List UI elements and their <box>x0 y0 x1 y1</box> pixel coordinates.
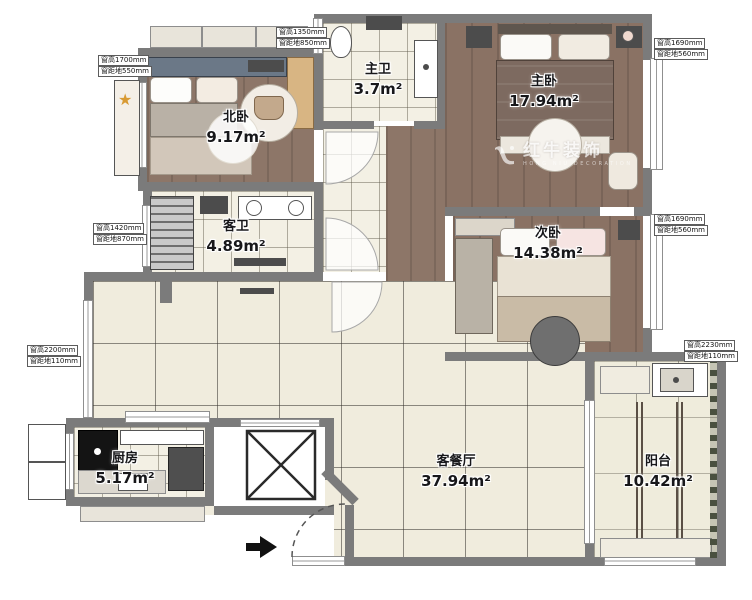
exterior-cabinet <box>150 26 202 48</box>
washer <box>366 16 402 30</box>
entry-door <box>292 556 345 566</box>
window-sill-text: 窗距地560mm <box>654 49 708 60</box>
room-label-second-bedroom: 次卧 14.38m² <box>513 222 583 262</box>
window-sill-text: 窗距地560mm <box>654 225 708 236</box>
pillow <box>500 34 552 60</box>
window-height-text: 窗高1420mm <box>93 223 144 234</box>
window-tag-left-bottom: 窗高2200mm 窗距地110mm <box>27 345 81 367</box>
room-name: 阳台 <box>623 450 693 469</box>
pillow <box>558 34 610 60</box>
window-tag-left-mid: 窗高1420mm 窗距地870mm <box>93 223 147 245</box>
window-height-text: 窗高2200mm <box>27 345 78 356</box>
sink-basin <box>246 200 262 216</box>
window-tag-top: 窗高1350mm 窗距地850mm <box>276 27 330 49</box>
bedside-table <box>618 220 640 240</box>
room-name: 主卧 <box>509 70 579 89</box>
window-height-text: 窗高2230mm <box>684 340 735 351</box>
window-sill-text: 窗距地850mm <box>276 38 330 49</box>
kitchen-pass-through-window <box>125 411 210 423</box>
window-sill-text: 窗距地110mm <box>684 351 738 362</box>
wall-living-left-upper <box>84 272 93 300</box>
guest-bath-toilet <box>200 196 228 214</box>
wall-kitchen-bottom <box>66 497 214 506</box>
toilet <box>330 26 352 58</box>
exterior-cabinet <box>202 26 256 48</box>
room-area: 17.94m² <box>509 92 579 110</box>
floor-plan: ★ <box>0 0 752 600</box>
window-height-text: 窗高1700mm <box>98 55 149 66</box>
room-area: 5.17m² <box>95 469 154 487</box>
window-height-text: 窗高1350mm <box>276 27 327 38</box>
window-tag-right-bottom: 窗高2230mm 窗距地110mm <box>684 340 738 362</box>
kitchen-window <box>65 433 74 490</box>
room-area: 37.94m² <box>421 472 491 490</box>
room-area: 3.7m² <box>354 80 403 98</box>
balcony-plants <box>710 362 717 558</box>
room-area: 4.89m² <box>206 237 265 255</box>
star-icon: ★ <box>118 92 132 108</box>
window-height-text: 窗高1690mm <box>654 214 705 225</box>
room-label-master-bedroom: 主卧 17.94m² <box>509 70 579 110</box>
room-label-north-bedroom: 北卧 9.17m² <box>206 106 265 146</box>
wall-entry-left <box>345 505 354 561</box>
nightstand <box>466 26 492 48</box>
balcony-cabinet <box>600 366 650 394</box>
living-room-window <box>83 300 93 418</box>
fridge <box>168 447 204 491</box>
sink-basin <box>288 200 304 216</box>
desk-items <box>248 60 284 72</box>
balcony-bench <box>600 538 712 558</box>
room-name: 主卫 <box>354 58 403 77</box>
kitchen-counter-top <box>120 430 204 445</box>
wall-living-top <box>84 272 323 281</box>
watermark: 红牛装饰 HONG NIU DECORATION <box>492 142 633 168</box>
room-area: 14.38m² <box>513 244 583 262</box>
pillow <box>150 77 192 103</box>
watermark-brand: 红牛装饰 <box>523 143 633 160</box>
room-area: 9.17m² <box>206 128 265 146</box>
room-name: 厨房 <box>95 447 154 466</box>
wall-north-bedroom-top <box>138 48 323 57</box>
second-bedroom-round-rug <box>530 316 580 366</box>
window-tag-right-top: 窗高1690mm 窗距地560mm <box>654 38 708 60</box>
wall-north-bedroom-bottom <box>138 182 323 191</box>
wall-kitchen-elevator-divider <box>205 418 214 506</box>
pillow <box>196 77 238 103</box>
window-sill-text: 窗距地870mm <box>93 234 147 245</box>
room-label-kitchen: 厨房 5.17m² <box>95 447 154 487</box>
wall-living-bottom <box>345 557 592 566</box>
wall-column-stub <box>160 281 172 303</box>
master-bed-headboard <box>498 24 612 34</box>
exterior-unit <box>28 462 66 500</box>
window-tag-right-mid: 窗高1690mm 窗距地560mm <box>654 214 708 236</box>
wall-master-bath-bottom-left <box>314 121 374 129</box>
wall-balcony-right <box>717 352 726 566</box>
room-name: 客餐厅 <box>421 450 491 469</box>
wall-second-bedroom-top-left <box>445 207 600 216</box>
wall-guest-bath-right <box>314 191 323 276</box>
elevator-door <box>240 419 320 427</box>
elevator-floor <box>214 427 325 506</box>
window-height-text: 窗高1690mm <box>654 38 705 49</box>
second-bedroom-wardrobe <box>455 238 493 334</box>
room-label-master-bath: 主卫 3.7m² <box>354 58 403 98</box>
window-sill-text: 窗距地550mm <box>98 66 152 77</box>
watermark-subtitle: HONG NIU DECORATION <box>523 162 633 167</box>
kitchen-outside-cabinet <box>80 506 205 522</box>
sink-drain <box>673 377 679 383</box>
hallway-floor <box>323 126 386 272</box>
room-name: 客卫 <box>206 215 265 234</box>
room-label-guest-bath: 客卫 4.89m² <box>206 215 265 255</box>
master-bedroom-bay-window <box>650 58 663 170</box>
room-label-balcony: 阳台 10.42m² <box>623 450 693 490</box>
room-label-living-dining: 客餐厅 37.94m² <box>421 450 491 490</box>
wall-master-bath-master-bedroom-divider <box>437 14 445 129</box>
table-lamp <box>622 30 634 42</box>
staircase <box>150 196 194 270</box>
window-sill-text: 窗距地110mm <box>27 356 81 367</box>
exterior-unit <box>28 424 66 462</box>
balcony-sliding-door <box>584 400 595 544</box>
shower-drain <box>423 64 429 70</box>
wall-right-exterior-upper <box>643 14 652 60</box>
wall-mounted-item <box>240 288 274 294</box>
window-tag-left-top: 窗高1700mm 窗距地550mm <box>98 55 152 77</box>
room-area: 10.42m² <box>623 472 693 490</box>
red-bull-logo-icon <box>492 142 518 168</box>
room-name: 北卧 <box>206 106 265 125</box>
room-name: 次卧 <box>513 222 583 241</box>
wall-elevator-bottom <box>214 506 334 515</box>
bath-mat <box>234 258 286 266</box>
